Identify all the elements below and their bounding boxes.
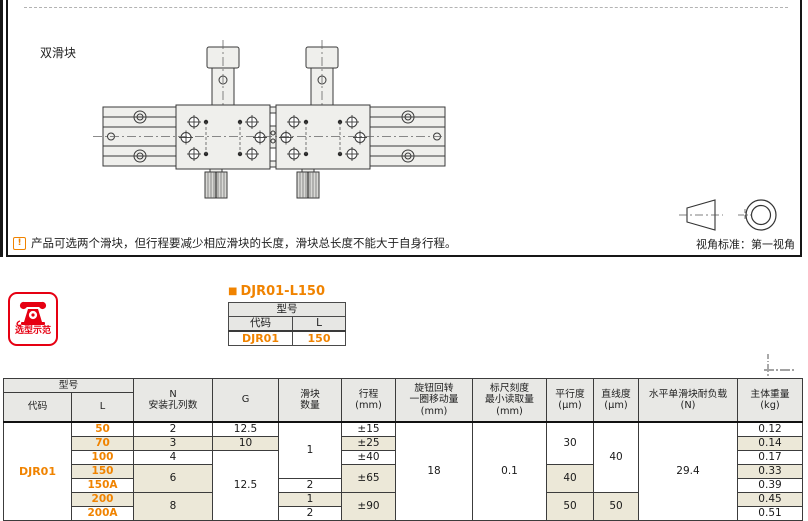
spec-cell: 2 bbox=[279, 479, 342, 493]
spec-header-cell: 水平单滑块耐负载 (N) bbox=[639, 379, 738, 423]
spec-cell: 40 bbox=[547, 465, 594, 493]
spec-header-cell: 旋钮回转 一圈移动量 (mm) bbox=[396, 379, 473, 423]
spec-cell: 70 bbox=[72, 437, 134, 451]
spec-header-model: 型号 bbox=[4, 379, 134, 393]
projection-standard: 视角标准：第一视角 bbox=[679, 195, 795, 252]
spec-header-cell: G bbox=[213, 379, 279, 423]
mini-header-code: 代码 bbox=[229, 317, 293, 332]
spec-cell: 0.51 bbox=[738, 507, 803, 521]
mini-value-code: DJR01 bbox=[229, 331, 293, 346]
spec-cell: 150 bbox=[72, 465, 134, 479]
spec-cell: 100 bbox=[72, 451, 134, 465]
spec-row: DJR0150212.51±15180.1304029.40.12 bbox=[4, 422, 803, 437]
spec-cell: 30 bbox=[547, 422, 594, 465]
spec-header-code: 代码 bbox=[4, 393, 72, 423]
spec-header-l: L bbox=[72, 393, 134, 423]
spec-cell: 6 bbox=[134, 465, 213, 493]
product-note: ! 产品可选两个滑块，但行程要减少相应滑块的长度，滑块总长度不能大于自身行程。 bbox=[13, 235, 457, 251]
spec-cell: 50 bbox=[594, 493, 639, 521]
badge-label: 选型示范 bbox=[10, 326, 56, 336]
spec-cell: ±65 bbox=[342, 465, 396, 493]
spec-cell: 12.5 bbox=[213, 422, 279, 437]
spec-cell: 8 bbox=[134, 493, 213, 521]
example-part-number: ■ DJR01-L150 bbox=[228, 284, 325, 299]
variant-label: 双滑块 bbox=[40, 44, 76, 61]
centerline-fragment bbox=[756, 354, 802, 378]
first-angle-projection-icon bbox=[679, 195, 795, 235]
spec-cell: 1 bbox=[279, 493, 342, 507]
view-standard-label: 视角标准：第一视角 bbox=[679, 236, 795, 252]
spec-cell: 1 bbox=[279, 422, 342, 479]
spec-header-cell: 平行度 (μm) bbox=[547, 379, 594, 423]
spec-cell: ±90 bbox=[342, 493, 396, 521]
product-variant-panel: 双滑块 bbox=[6, 0, 802, 257]
dashed-divider bbox=[24, 7, 788, 8]
spec-cell: ±40 bbox=[342, 451, 396, 465]
spec-header-cell: N 安装孔列数 bbox=[134, 379, 213, 423]
spec-header-cell: 标尺刻度 最小读取量 (mm) bbox=[473, 379, 547, 423]
note-text: 产品可选两个滑块，但行程要减少相应滑块的长度，滑块总长度不能大于自身行程。 bbox=[31, 235, 457, 251]
mini-value-l: 150 bbox=[293, 331, 346, 346]
dual-slider-technical-drawing bbox=[88, 38, 450, 200]
spec-header-cell: 主体重量 (kg) bbox=[738, 379, 803, 423]
page-edge-bar bbox=[0, 0, 3, 257]
spec-cell: 0.39 bbox=[738, 479, 803, 493]
spec-cell: 0.45 bbox=[738, 493, 803, 507]
selection-example-badge: 选型示范 bbox=[8, 292, 58, 346]
spec-cell: 50 bbox=[72, 422, 134, 437]
spec-cell: 200 bbox=[72, 493, 134, 507]
spec-cell: 0.12 bbox=[738, 422, 803, 437]
spec-cell: ±25 bbox=[342, 437, 396, 451]
bullet-square-icon: ■ bbox=[228, 285, 237, 298]
spec-cell: 2 bbox=[279, 507, 342, 521]
spec-cell: 0.1 bbox=[473, 422, 547, 521]
spec-cell: 10 bbox=[213, 437, 279, 451]
spec-header-cell: 滑块 数量 bbox=[279, 379, 342, 423]
spec-cell: 150A bbox=[72, 479, 134, 493]
spec-cell: 2 bbox=[134, 422, 213, 437]
mini-header-l: L bbox=[293, 317, 346, 332]
spec-cell: 0.17 bbox=[738, 451, 803, 465]
spec-cell: 40 bbox=[594, 422, 639, 493]
spec-cell: ±15 bbox=[342, 422, 396, 437]
spec-cell: 200A bbox=[72, 507, 134, 521]
spec-cell: 29.4 bbox=[639, 422, 738, 521]
spec-cell: 12.5 bbox=[213, 451, 279, 521]
spec-header-cell: 行程 (mm) bbox=[342, 379, 396, 423]
telephone-icon bbox=[15, 298, 51, 326]
part-number-text: DJR01-L150 bbox=[240, 284, 325, 299]
spec-table: 型号N 安装孔列数G滑块 数量行程 (mm)旋钮回转 一圈移动量 (mm)标尺刻… bbox=[3, 378, 803, 521]
spec-cell: 0.14 bbox=[738, 437, 803, 451]
spec-cell: 4 bbox=[134, 451, 213, 465]
model-mini-table: 型号 代码 L DJR01 150 bbox=[228, 302, 346, 346]
spec-cell: 0.33 bbox=[738, 465, 803, 479]
spec-cell: 3 bbox=[134, 437, 213, 451]
warning-icon: ! bbox=[13, 237, 26, 250]
mini-table-title: 型号 bbox=[229, 303, 346, 317]
spec-header-cell: 直线度 (μm) bbox=[594, 379, 639, 423]
spec-cell: 50 bbox=[547, 493, 594, 521]
spec-cell: DJR01 bbox=[4, 422, 72, 521]
spec-cell: 18 bbox=[396, 422, 473, 521]
